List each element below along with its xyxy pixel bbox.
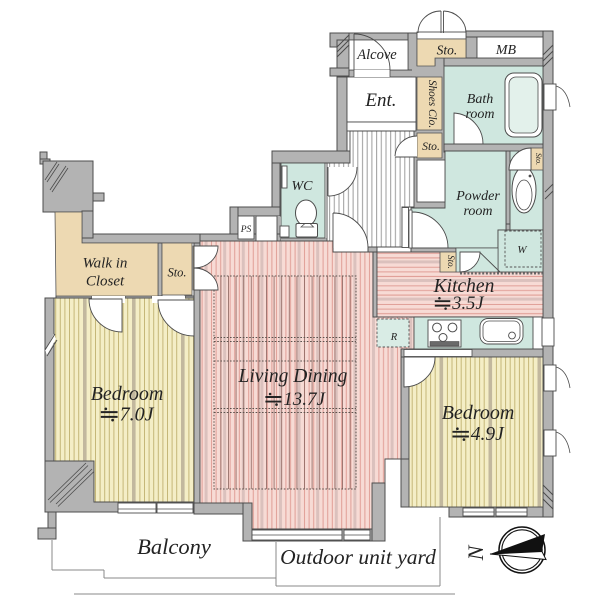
svg-text:Alcove: Alcove xyxy=(356,47,397,63)
svg-text:Bedroom: Bedroom xyxy=(91,383,164,405)
svg-text:7.0J: 7.0J xyxy=(120,404,155,426)
svg-text:WC: WC xyxy=(292,179,314,194)
svg-text:R: R xyxy=(390,332,398,343)
svg-text:room: room xyxy=(465,107,494,122)
svg-text:Sto.: Sto. xyxy=(534,153,543,165)
svg-text:Bath: Bath xyxy=(467,92,493,107)
svg-text:Sto.: Sto. xyxy=(167,266,186,280)
svg-text:Sto.: Sto. xyxy=(422,140,440,153)
svg-text:Closet: Closet xyxy=(86,274,125,290)
svg-text:Shoes Clo.: Shoes Clo. xyxy=(426,80,438,128)
svg-text:MB: MB xyxy=(495,43,517,58)
svg-text:Ent.: Ent. xyxy=(364,90,396,111)
svg-text:Sto.: Sto. xyxy=(437,43,458,58)
svg-text:Outdoor unit yard: Outdoor unit yard xyxy=(280,545,436,569)
svg-text:room: room xyxy=(463,204,492,219)
svg-text:Bedroom: Bedroom xyxy=(442,402,515,424)
svg-text:N: N xyxy=(463,544,488,561)
svg-text:Powder: Powder xyxy=(455,189,500,204)
svg-text:3.5J: 3.5J xyxy=(451,294,484,314)
svg-text:Walk in: Walk in xyxy=(83,256,128,272)
svg-text:W: W xyxy=(517,244,527,256)
svg-text:Balcony: Balcony xyxy=(137,534,211,559)
svg-text:13.7J: 13.7J xyxy=(283,389,326,410)
svg-text:Living Dining: Living Dining xyxy=(238,366,348,387)
svg-text:PS: PS xyxy=(240,225,252,235)
svg-text:4.9J: 4.9J xyxy=(471,424,505,445)
svg-text:Sto.: Sto. xyxy=(446,255,456,269)
